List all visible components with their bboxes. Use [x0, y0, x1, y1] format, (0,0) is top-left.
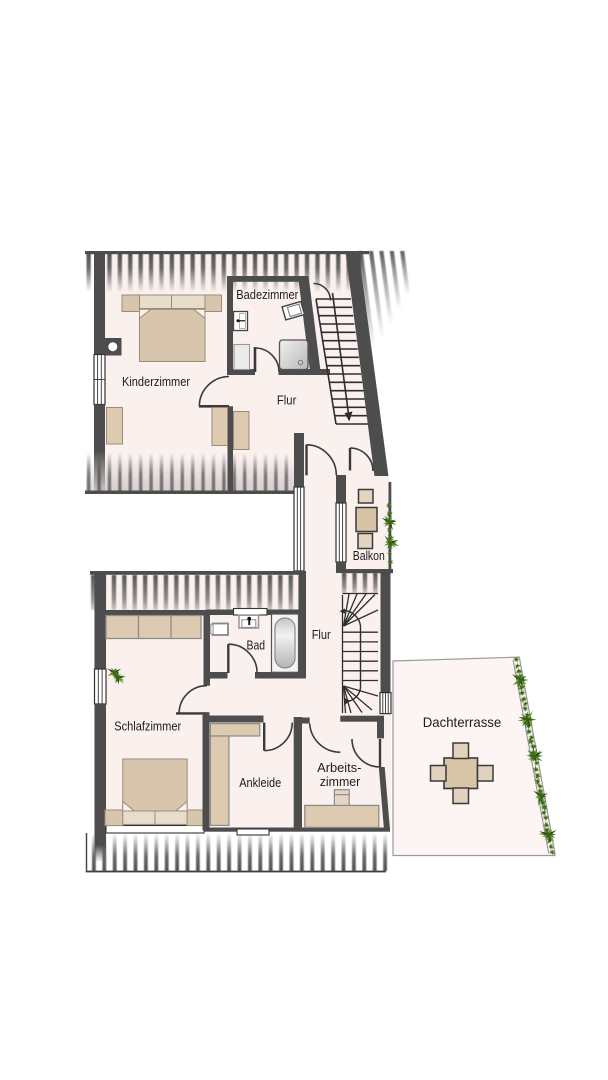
svg-text:Arbeits-: Arbeits- — [317, 760, 361, 775]
svg-text:Dachterrasse: Dachterrasse — [423, 715, 502, 730]
svg-text:Flur: Flur — [312, 627, 332, 642]
svg-text:zimmer: zimmer — [320, 774, 361, 789]
svg-text:Kinderzimmer: Kinderzimmer — [122, 374, 191, 389]
svg-text:Badezimmer: Badezimmer — [236, 287, 298, 302]
svg-text:Balkon: Balkon — [353, 548, 385, 563]
svg-text:Flur: Flur — [277, 393, 297, 408]
svg-text:Bad: Bad — [247, 638, 266, 653]
svg-text:Schlafzimmer: Schlafzimmer — [114, 719, 182, 734]
svg-text:Ankleide: Ankleide — [239, 775, 281, 790]
